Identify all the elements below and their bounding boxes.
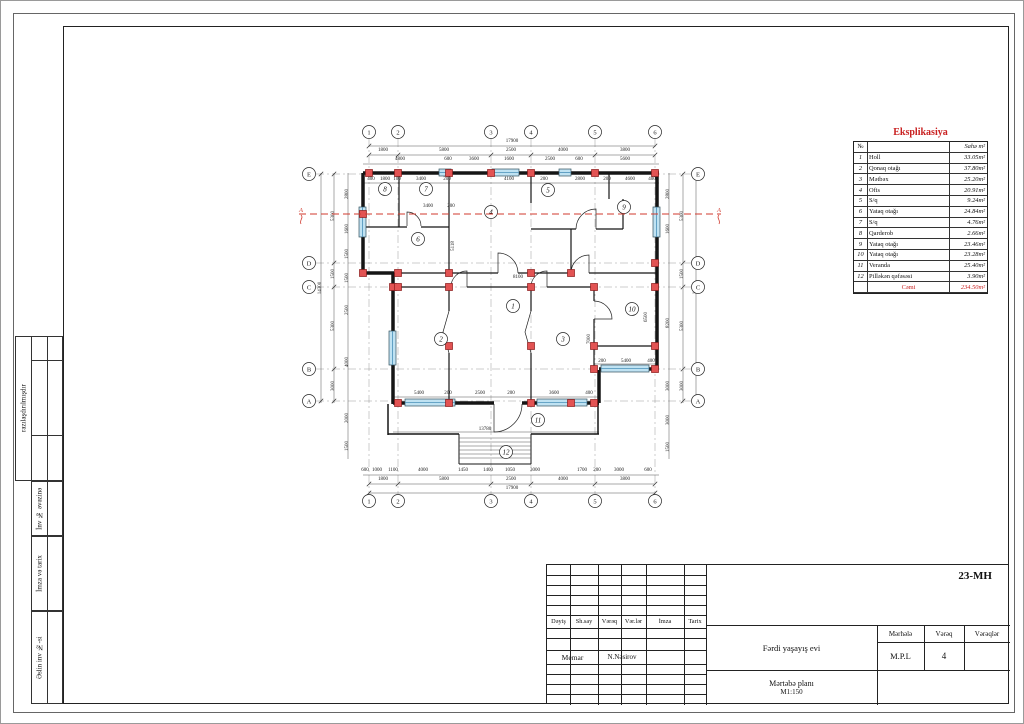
svg-text:3400: 3400 <box>423 204 434 209</box>
ek-total-label: Cəmi <box>868 282 950 293</box>
sheet-code: 23-MH <box>932 569 992 583</box>
svg-text:1050: 1050 <box>505 468 516 473</box>
svg-text:600: 600 <box>361 468 369 473</box>
ek-row-name: Veranda <box>868 261 950 272</box>
svg-text:3000: 3000 <box>680 381 685 392</box>
svg-text:5: 5 <box>546 186 550 194</box>
svg-text:1500: 1500 <box>680 269 685 280</box>
eksplikasiya-title: Eksplikasiya <box>853 127 988 138</box>
svg-text:3600: 3600 <box>549 391 560 396</box>
project-name: Fərdi yaşayış evi <box>706 625 877 670</box>
tb-col-verler: Vər.lər <box>621 615 646 628</box>
ek-row-name: Holl <box>868 153 950 164</box>
memar-name: N.Nəsirov <box>598 650 646 664</box>
ek-total-value: 234.50m² <box>950 282 987 293</box>
tb-col-imza: İmza <box>646 615 684 628</box>
svg-text:5: 5 <box>593 129 596 136</box>
svg-text:E: E <box>307 171 311 178</box>
svg-text:4000: 4000 <box>418 468 429 473</box>
svg-text:4100: 4100 <box>504 177 515 182</box>
svg-text:A: A <box>298 207 303 214</box>
ek-row-area: 23.46m² <box>950 239 987 250</box>
ek-row-name: Yataq otağı <box>868 250 950 261</box>
svg-text:1: 1 <box>367 129 370 136</box>
svg-text:2800: 2800 <box>345 189 350 200</box>
svg-text:1700: 1700 <box>577 468 588 473</box>
svg-text:A: A <box>716 207 721 214</box>
stage-label: Mərhələ <box>877 625 924 642</box>
svg-text:1500: 1500 <box>345 249 350 260</box>
svg-text:9: 9 <box>622 203 626 211</box>
svg-text:5118: 5118 <box>451 241 456 251</box>
ek-row-area: 33.05m² <box>950 153 987 164</box>
svg-text:5800: 5800 <box>439 477 450 482</box>
title-block: Dəyiş Sh.say Vərəq Vər.lər İmza Tarix Me… <box>546 564 1009 704</box>
svg-text:6: 6 <box>416 235 420 243</box>
svg-text:4000: 4000 <box>345 357 350 368</box>
svg-text:2: 2 <box>439 335 443 343</box>
stamp-approved-cell-1 <box>31 337 47 480</box>
svg-text:200: 200 <box>447 204 455 209</box>
drawing-scale: M1:150 <box>780 688 802 696</box>
svg-text:400: 400 <box>585 391 593 396</box>
svg-text:5300: 5300 <box>680 321 685 332</box>
titleblock-column-headers: Dəyiş Sh.say Vərəq Vər.lər İmza Tarix <box>547 615 706 628</box>
stamp-inv-instead: İnv № əvəzinə <box>31 481 63 536</box>
svg-text:200: 200 <box>443 177 451 182</box>
dimension-lines-layer <box>319 144 698 495</box>
svg-text:1400: 1400 <box>483 468 494 473</box>
ek-row-no: 2 <box>854 164 868 175</box>
svg-text:400: 400 <box>647 359 655 364</box>
ek-head-no: № <box>854 142 868 153</box>
svg-text:3: 3 <box>489 498 492 505</box>
ek-row-name: Yataq otağı <box>868 239 950 250</box>
stage-value: M.P.L <box>877 642 924 670</box>
tb-col-vereq: Vərəq <box>598 615 621 628</box>
sheets-label: Vərəqlər <box>964 625 1010 642</box>
svg-text:600: 600 <box>575 157 583 162</box>
ek-row-no: 10 <box>854 250 868 261</box>
svg-text:14300: 14300 <box>318 281 323 294</box>
stamp-inv-instead-cell <box>47 482 62 535</box>
svg-text:7000: 7000 <box>587 334 592 345</box>
stamp-approved: razılaşdırılmışdır <box>15 336 63 481</box>
svg-text:3400: 3400 <box>416 177 427 182</box>
svg-text:12: 12 <box>503 448 511 456</box>
svg-text:600: 600 <box>444 157 452 162</box>
ek-row-name: S/q <box>868 196 950 207</box>
ek-row-name: Mətbəx <box>868 174 950 185</box>
svg-text:10: 10 <box>629 305 637 313</box>
svg-text:1800: 1800 <box>378 148 389 153</box>
eksplikasiya-table: №Sahə m²1Holl33.05m²2Qonaq otağı37.80m²3… <box>853 141 988 294</box>
ek-row-area: 3.90m² <box>950 272 987 283</box>
svg-text:1500: 1500 <box>345 273 350 284</box>
svg-text:1: 1 <box>367 498 370 505</box>
drawing-name: Mərtəbə planı <box>769 679 814 688</box>
stamp-orig-inv-label: Əslin inv №-si <box>32 612 47 703</box>
svg-text:2500: 2500 <box>345 305 350 316</box>
svg-text:2: 2 <box>396 129 399 136</box>
stamp-approved-cell-2 <box>47 337 63 480</box>
svg-text:1100: 1100 <box>388 468 398 473</box>
ek-row-area: 23.28m² <box>950 250 987 261</box>
svg-text:200: 200 <box>598 359 606 364</box>
tb-col-shsay: Sh.say <box>570 615 598 628</box>
svg-text:3: 3 <box>560 335 565 343</box>
grid-lines-layer <box>316 139 691 494</box>
svg-text:3000: 3000 <box>666 381 671 392</box>
svg-text:C: C <box>307 284 311 291</box>
svg-text:2800: 2800 <box>666 189 671 200</box>
ek-row-area: 20.91m² <box>950 185 987 196</box>
ek-row-area: 24.84m² <box>950 207 987 218</box>
ek-row-no: 6 <box>854 207 868 218</box>
svg-text:3000: 3000 <box>530 468 541 473</box>
doors-layer <box>407 209 612 432</box>
ek-row-area: 9.24m² <box>950 196 987 207</box>
ek-row-area: 25.40m² <box>950 261 987 272</box>
ek-row-name: Qarderob <box>868 228 950 239</box>
svg-text:8100: 8100 <box>513 275 524 280</box>
svg-text:5600: 5600 <box>620 157 631 162</box>
ek-row-no: 4 <box>854 185 868 196</box>
svg-text:1: 1 <box>511 302 515 310</box>
ek-row-no: 8 <box>854 228 868 239</box>
svg-text:1600: 1600 <box>345 224 350 235</box>
svg-text:200: 200 <box>540 177 548 182</box>
svg-text:3: 3 <box>489 129 492 136</box>
stamp-sign-date-label: İmza və tarix <box>32 537 47 610</box>
svg-text:8200: 8200 <box>666 318 671 329</box>
svg-text:17900: 17900 <box>506 486 519 491</box>
ek-row-no: 9 <box>854 239 868 250</box>
svg-text:D: D <box>307 260 312 267</box>
svg-text:13780: 13780 <box>479 427 492 432</box>
sheet-number: 4 <box>924 642 964 670</box>
svg-text:A: A <box>307 398 312 405</box>
svg-text:2: 2 <box>396 498 399 505</box>
svg-text:2500: 2500 <box>475 391 486 396</box>
ek-row-name: Ofis <box>868 185 950 196</box>
ek-row-area: 2.66m² <box>950 228 987 239</box>
svg-text:1600: 1600 <box>504 157 515 162</box>
svg-text:4000: 4000 <box>558 148 569 153</box>
svg-text:5300: 5300 <box>680 211 685 222</box>
ek-row-area: 37.80m² <box>950 164 987 175</box>
svg-text:1500: 1500 <box>666 442 671 453</box>
svg-text:C: C <box>696 284 700 291</box>
svg-text:6500: 6500 <box>644 312 649 323</box>
svg-text:8: 8 <box>383 185 387 193</box>
svg-text:2800: 2800 <box>575 177 586 182</box>
svg-text:11: 11 <box>535 416 541 424</box>
svg-text:3000: 3000 <box>614 468 625 473</box>
svg-text:400: 400 <box>648 177 656 182</box>
ek-row-no: 1 <box>854 153 868 164</box>
sheet-label: Vərəq <box>924 625 964 642</box>
svg-text:1500: 1500 <box>331 269 336 280</box>
drawing-sheet: 1234567891011121790018005800250040003800… <box>0 0 1024 724</box>
svg-text:5: 5 <box>593 498 596 505</box>
svg-text:200: 200 <box>603 177 611 182</box>
ek-row-no: 12 <box>854 272 868 283</box>
svg-text:4600: 4600 <box>625 177 636 182</box>
svg-text:4: 4 <box>489 208 493 216</box>
ek-row-name: Pilləkən qəfəsəsi <box>868 272 950 283</box>
svg-text:E: E <box>696 171 700 178</box>
stamp-sign-date: İmza və tarix <box>31 536 63 611</box>
memar-label: Memar <box>547 650 598 664</box>
stamp-approved-label: razılaşdırılmışdır <box>16 337 31 480</box>
svg-text:1800: 1800 <box>378 477 389 482</box>
ek-row-area: 4.76m² <box>950 218 987 229</box>
svg-text:1450: 1450 <box>458 468 469 473</box>
walls-layer <box>363 173 659 464</box>
svg-text:5400: 5400 <box>414 391 425 396</box>
ek-row-no: 5 <box>854 196 868 207</box>
ek-total-spacer <box>854 282 868 293</box>
tb-col-deyis: Dəyiş <box>547 615 570 628</box>
svg-text:17900: 17900 <box>506 139 519 144</box>
svg-text:B: B <box>696 366 701 373</box>
svg-text:3800: 3800 <box>620 148 631 153</box>
svg-text:1500: 1500 <box>345 441 350 452</box>
stamp-orig-inv: Əslin inv №-si <box>31 611 63 704</box>
svg-text:200: 200 <box>507 391 515 396</box>
stamp-orig-inv-cell <box>47 612 62 703</box>
svg-text:3000: 3000 <box>331 381 336 392</box>
tb-col-tarix: Tarix <box>684 615 706 628</box>
svg-text:600: 600 <box>644 468 652 473</box>
svg-text:D: D <box>696 260 701 267</box>
ek-row-area: 25.20m² <box>950 174 987 185</box>
svg-text:3800: 3800 <box>620 477 631 482</box>
svg-text:2500: 2500 <box>506 477 517 482</box>
ek-row-no: 3 <box>854 174 868 185</box>
ek-row-no: 11 <box>854 261 868 272</box>
svg-text:2500: 2500 <box>545 157 556 162</box>
room-numbers-layer: 123456789101112 <box>379 183 639 459</box>
ek-row-name: S/q <box>868 218 950 229</box>
svg-text:5400: 5400 <box>621 359 632 364</box>
svg-text:2500: 2500 <box>506 148 517 153</box>
svg-text:B: B <box>307 366 312 373</box>
ek-row-name: Yataq otağı <box>868 207 950 218</box>
svg-text:200: 200 <box>593 468 601 473</box>
stamp-sign-date-cell <box>47 537 62 610</box>
svg-text:5800: 5800 <box>439 148 450 153</box>
svg-text:5300: 5300 <box>331 211 336 222</box>
svg-text:1000: 1000 <box>372 468 383 473</box>
svg-text:1800: 1800 <box>380 177 391 182</box>
svg-text:3600: 3600 <box>469 157 480 162</box>
svg-text:1600: 1600 <box>666 224 671 235</box>
svg-text:400: 400 <box>367 177 375 182</box>
svg-text:5300: 5300 <box>331 321 336 332</box>
ek-head-area: Sahə m² <box>950 142 987 153</box>
svg-text:2000: 2000 <box>345 413 350 424</box>
svg-text:3000: 3000 <box>666 415 671 426</box>
svg-text:4000: 4000 <box>558 477 569 482</box>
ek-row-name: Qonaq otağı <box>868 164 950 175</box>
svg-text:7: 7 <box>424 185 428 193</box>
ek-row-no: 7 <box>854 218 868 229</box>
svg-text:A: A <box>696 398 701 405</box>
svg-text:4800: 4800 <box>395 157 406 162</box>
ek-head-name <box>868 142 950 153</box>
svg-text:200: 200 <box>444 391 452 396</box>
stairs-layer <box>459 438 531 458</box>
svg-text:100: 100 <box>393 177 401 182</box>
stamp-inv-instead-label: İnv № əvəzinə <box>32 482 47 535</box>
